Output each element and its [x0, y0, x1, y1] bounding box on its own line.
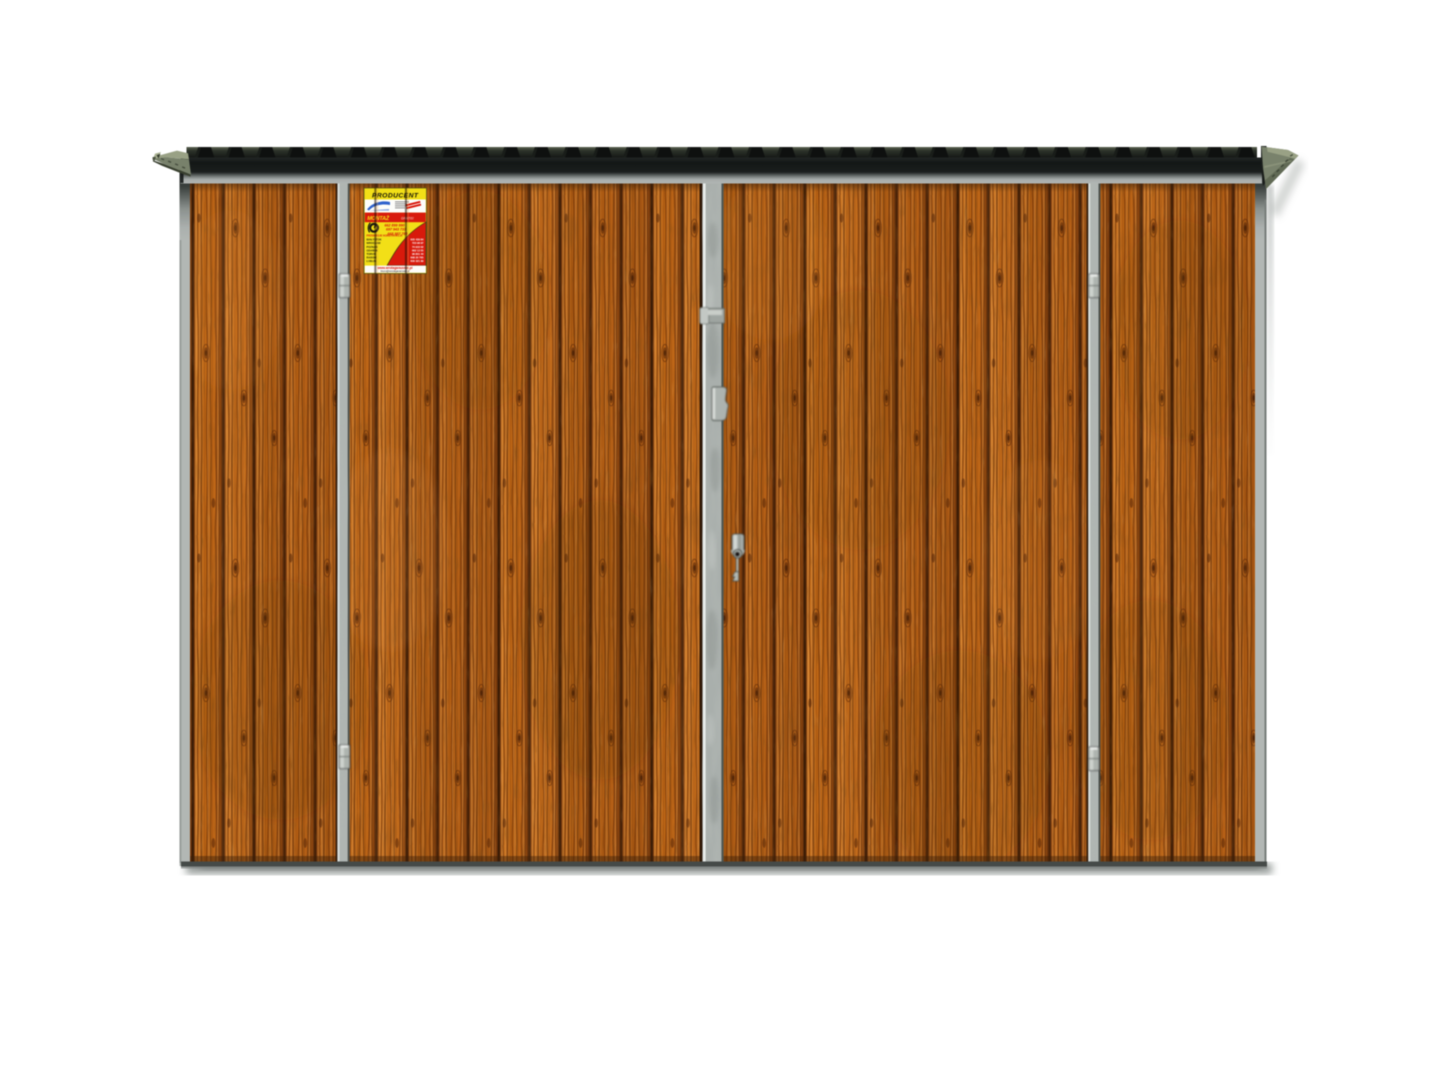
- svg-text:BIAŁYSTOK: BIAŁYSTOK: [367, 238, 382, 242]
- svg-text:96 801 44: 96 801 44: [412, 252, 424, 256]
- svg-text:74 933 02: 74 933 02: [412, 245, 424, 249]
- svg-text:600 321 99: 600 321 99: [411, 259, 425, 263]
- svg-text:WROCŁAW: WROCŁAW: [367, 241, 382, 245]
- svg-text:PRZEKROJE KONSTRUKCJI:: PRZEKROJE KONSTRUKCJI:: [367, 233, 403, 237]
- svg-text:723 98 97: 723 98 97: [412, 241, 424, 245]
- svg-text:662 13 55: 662 13 55: [412, 248, 424, 252]
- svg-text:668 20 765: 668 20 765: [411, 256, 425, 260]
- svg-text:MONTAŻ: MONTAŻ: [367, 215, 390, 222]
- svg-text:PRODUCENT: PRODUCENT: [372, 192, 419, 199]
- svg-text:605 439 84: 605 439 84: [411, 238, 425, 242]
